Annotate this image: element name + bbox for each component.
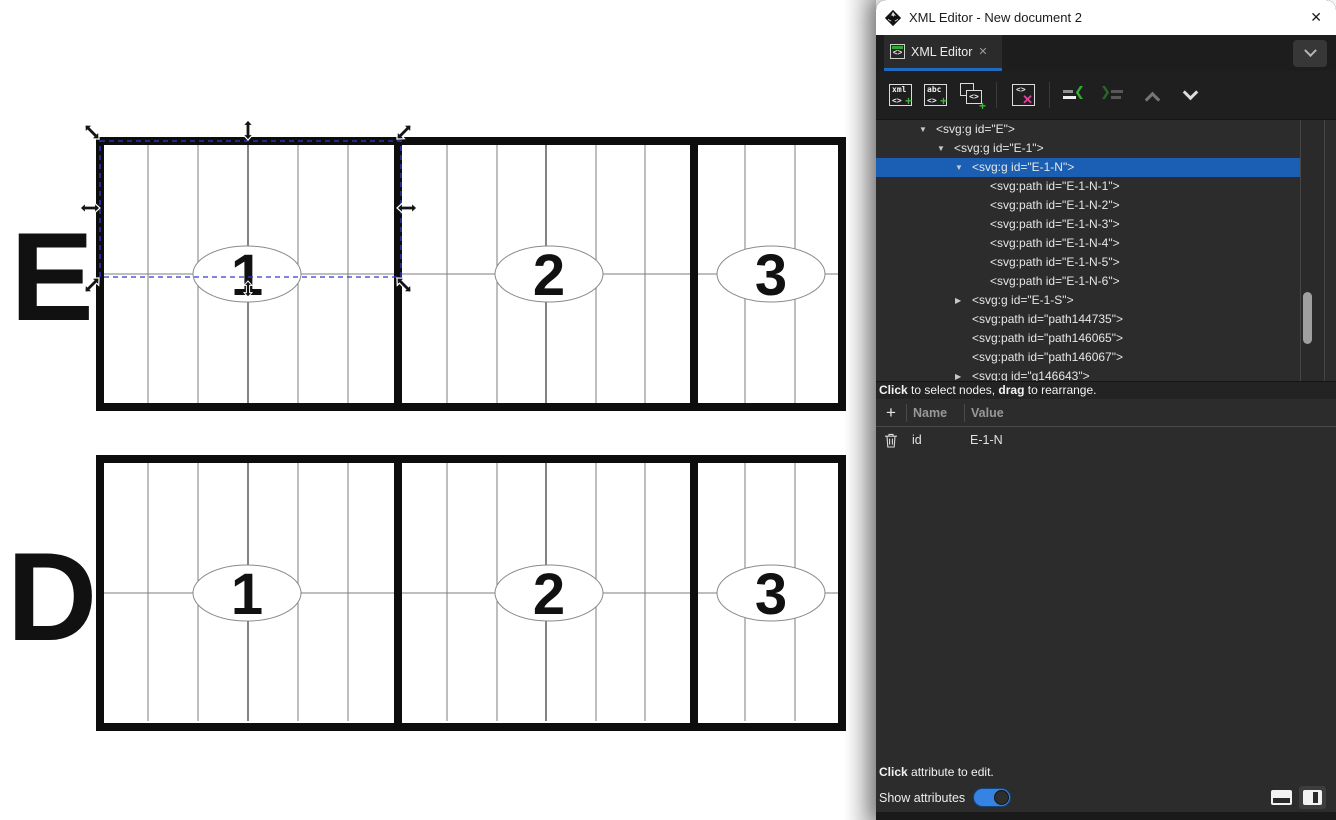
- row-letter: E: [10, 208, 93, 347]
- tree-node-label: <svg:g id="E">: [936, 120, 1015, 139]
- expander-icon[interactable]: ▶: [955, 367, 972, 381]
- dialog-titlebar[interactable]: XML Editor - New document 2 ✕: [876, 0, 1336, 35]
- inkscape-logo-icon: [884, 9, 902, 27]
- delete-node-button[interactable]: <> ✕: [1011, 82, 1037, 108]
- tree-node-label: <svg:g id="E-1">: [954, 139, 1044, 158]
- scale-handle-n[interactable]: [243, 120, 253, 140]
- section-label: 3: [755, 562, 787, 627]
- move-node-down-button[interactable]: [1178, 82, 1204, 108]
- tree-node-label: <svg:path id="E-1-N-4">: [990, 234, 1120, 253]
- indent-node-icon: ❯: [1100, 85, 1111, 100]
- drawing-canvas[interactable]: 1 2 3 E 1 2 3 D: [0, 0, 876, 820]
- indent-node-button[interactable]: ❯: [1099, 82, 1125, 108]
- tab-label: XML Editor: [911, 45, 972, 59]
- tree-node-label: <svg:path id="E-1-N-1">: [990, 177, 1120, 196]
- move-node-up-button[interactable]: [1140, 82, 1166, 108]
- tree-node-label: <svg:path id="E-1-N-5">: [990, 253, 1120, 272]
- tree-node-label: <svg:g id="g146643">: [972, 367, 1090, 381]
- tree-node-label: <svg:path id="E-1-N-2">: [990, 196, 1120, 215]
- row-E-drawing: 1 2 3 E: [10, 139, 842, 409]
- toolbar-separator: [1049, 82, 1050, 108]
- tree-node[interactable]: ▶ <svg:g id="E-1-S">: [876, 291, 1300, 310]
- tree-node[interactable]: <svg:path id="path144735">: [876, 310, 1300, 329]
- tree-node[interactable]: <svg:path id="E-1-N-1">: [876, 177, 1300, 196]
- tree-node-label: <svg:g id="E-1-S">: [972, 291, 1074, 310]
- expander-icon[interactable]: ▼: [919, 120, 936, 139]
- tree-node[interactable]: <svg:path id="E-1-N-5">: [876, 253, 1300, 272]
- tab-overflow-button[interactable]: [1293, 40, 1327, 67]
- row-D-drawing: 1 2 3 D: [7, 457, 842, 729]
- tree-node[interactable]: ▼ <svg:g id="E">: [876, 120, 1300, 139]
- section-label: 1: [231, 243, 263, 308]
- dialog-bottom-edge: [876, 812, 1336, 820]
- tree-node-label: <svg:path id="path146065">: [972, 329, 1123, 348]
- tree-scrollbar[interactable]: [1300, 120, 1325, 381]
- tree-status-text: Click to select nodes, drag to rearrange…: [876, 381, 1336, 399]
- tree-node-label: <svg:path id="E-1-N-6">: [990, 272, 1120, 291]
- toolbar-separator: [996, 82, 997, 108]
- section-label: 1: [231, 562, 263, 627]
- tree-node-label: <svg:path id="E-1-N-3">: [990, 215, 1120, 234]
- show-attributes-toggle[interactable]: [973, 788, 1011, 807]
- canvas-svg: 1 2 3 E 1 2 3 D: [0, 0, 876, 820]
- attribute-value[interactable]: E-1-N: [964, 433, 1336, 447]
- xml-tree: ▼ <svg:g id="E"> ▼ <svg:g id="E-1"> ▼ <s…: [876, 120, 1336, 381]
- show-attributes-label: Show attributes: [879, 791, 965, 805]
- chevron-down-icon: [1304, 44, 1317, 57]
- expander-icon[interactable]: ▶: [955, 291, 972, 310]
- dialog-footer: Show attributes: [876, 783, 1336, 812]
- unindent-node-button[interactable]: ❮: [1061, 82, 1087, 108]
- tree-node-label: <svg:path id="path144735">: [972, 310, 1123, 329]
- delete-node-icon: <> ✕: [1012, 84, 1035, 106]
- delete-attribute-button[interactable]: [876, 433, 906, 448]
- tree-node[interactable]: <svg:path id="E-1-N-6">: [876, 272, 1300, 291]
- xml-editor-dialog: XML Editor - New document 2 ✕ <> XML Edi…: [876, 0, 1336, 820]
- new-text-node-button[interactable]: abc <> +: [923, 82, 949, 108]
- xml-editor-tab-icon: <>: [890, 44, 905, 59]
- arrow-up-icon: [1145, 92, 1161, 108]
- xml-tree-rows: ▼ <svg:g id="E"> ▼ <svg:g id="E-1"> ▼ <s…: [876, 120, 1300, 381]
- tree-node[interactable]: ▼ <svg:g id="E-1-N">: [876, 158, 1300, 177]
- toggle-knob: [994, 790, 1009, 805]
- arrow-down-icon: [1183, 85, 1199, 101]
- tree-node[interactable]: <svg:path id="E-1-N-4">: [876, 234, 1300, 253]
- tab-close-icon[interactable]: ✕: [978, 45, 987, 58]
- attr-name-column-header: Name: [907, 406, 964, 420]
- section-label: 3: [755, 243, 787, 308]
- attribute-row[interactable]: id E-1-N: [876, 427, 1336, 453]
- attributes-empty-area: [876, 453, 1336, 763]
- section-label: 2: [533, 562, 565, 627]
- expander-icon[interactable]: ▼: [937, 139, 954, 158]
- tree-node[interactable]: ▶ <svg:g id="g146643">: [876, 367, 1300, 381]
- scrollbar-thumb[interactable]: [1303, 292, 1312, 344]
- dialog-close-icon[interactable]: ✕: [1310, 9, 1322, 26]
- layout-vertical-icon: [1303, 790, 1322, 805]
- trash-icon: [884, 433, 898, 448]
- add-attribute-button[interactable]: +: [876, 400, 906, 426]
- layout-horizontal-icon[interactable]: [1271, 790, 1292, 805]
- scale-handle-nw[interactable]: [81, 121, 102, 142]
- tab-strip: <> XML Editor ✕: [876, 35, 1336, 71]
- xml-toolbar: xml <> + abc <> + <> + <> ✕: [876, 71, 1336, 120]
- tree-node[interactable]: <svg:path id="path146067">: [876, 348, 1300, 367]
- new-element-node-button[interactable]: xml <> +: [888, 82, 914, 108]
- new-element-node-icon: xml <> +: [889, 84, 912, 106]
- tree-node-label: <svg:g id="E-1-N">: [972, 158, 1074, 177]
- row-letter: D: [7, 528, 97, 667]
- dialog-title: XML Editor - New document 2: [909, 10, 1310, 25]
- layout-vertical-button[interactable]: [1299, 786, 1326, 809]
- attribute-hint-text: Click attribute to edit.: [876, 763, 1336, 783]
- tree-node[interactable]: <svg:path id="E-1-N-3">: [876, 215, 1300, 234]
- expander-icon[interactable]: ▼: [955, 158, 972, 177]
- new-text-node-icon: abc <> +: [924, 84, 947, 106]
- attribute-name[interactable]: id: [906, 433, 964, 447]
- tree-node-label: <svg:path id="path146067">: [972, 348, 1123, 367]
- section-label: 2: [533, 243, 565, 308]
- panel-shadow: [844, 0, 876, 820]
- tree-node[interactable]: ▼ <svg:g id="E-1">: [876, 139, 1300, 158]
- tree-node[interactable]: <svg:path id="path146065">: [876, 329, 1300, 348]
- unindent-node-icon: [1063, 90, 1073, 93]
- attr-value-column-header: Value: [965, 406, 1336, 420]
- tree-node[interactable]: <svg:path id="E-1-N-2">: [876, 196, 1300, 215]
- tab-xml-editor[interactable]: <> XML Editor ✕: [884, 35, 1002, 71]
- duplicate-node-button[interactable]: <> +: [958, 82, 984, 108]
- attributes-header: + Name Value: [876, 399, 1336, 427]
- scale-handle-e[interactable]: [397, 203, 417, 213]
